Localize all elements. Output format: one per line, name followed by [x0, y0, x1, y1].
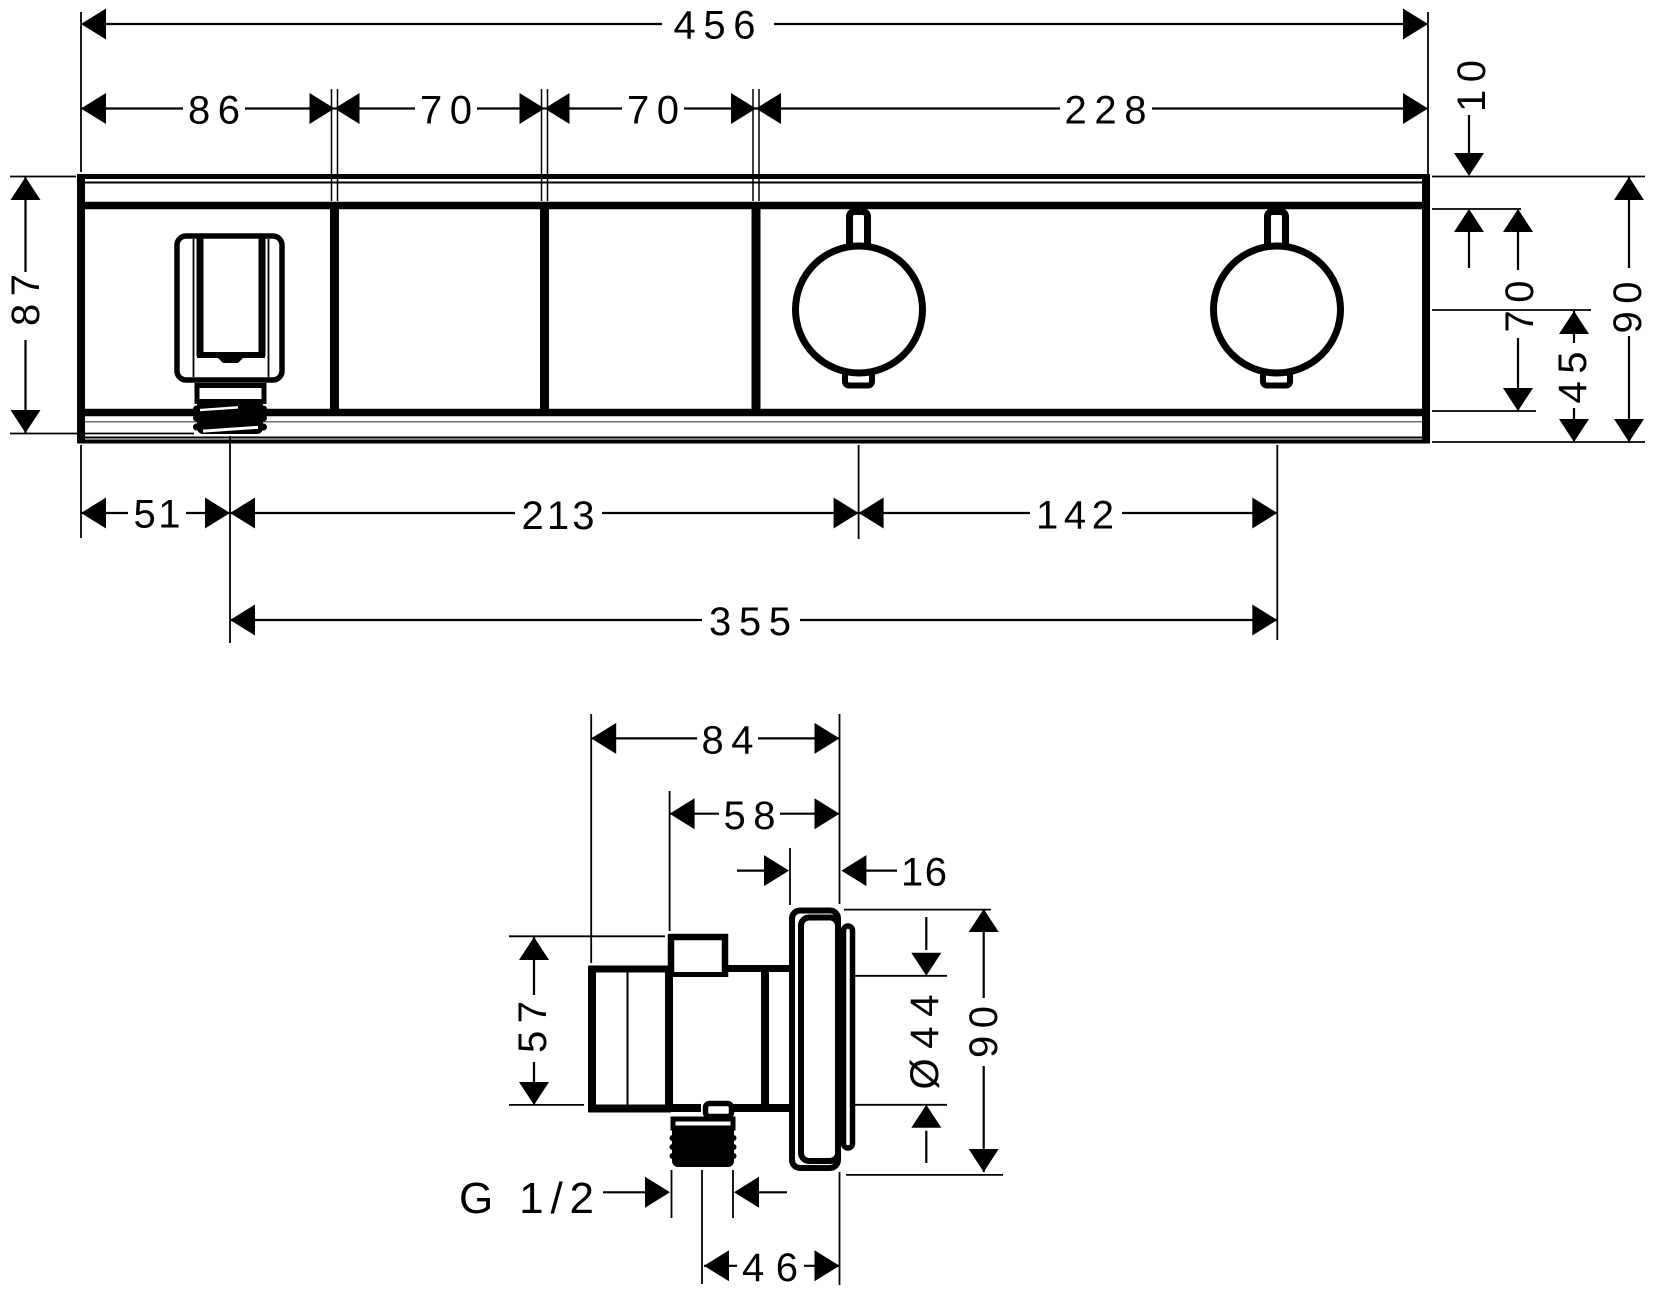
svg-text:142: 142	[1036, 494, 1114, 538]
svg-text:16: 16	[901, 851, 947, 895]
svg-text:456: 456	[674, 4, 756, 48]
svg-text:355: 355	[709, 600, 791, 644]
svg-text:228: 228	[1065, 89, 1147, 133]
svg-text:G 1/2: G 1/2	[459, 1174, 594, 1223]
svg-text:213: 213	[522, 494, 595, 538]
svg-text:Ø44: Ø44	[903, 995, 947, 1090]
